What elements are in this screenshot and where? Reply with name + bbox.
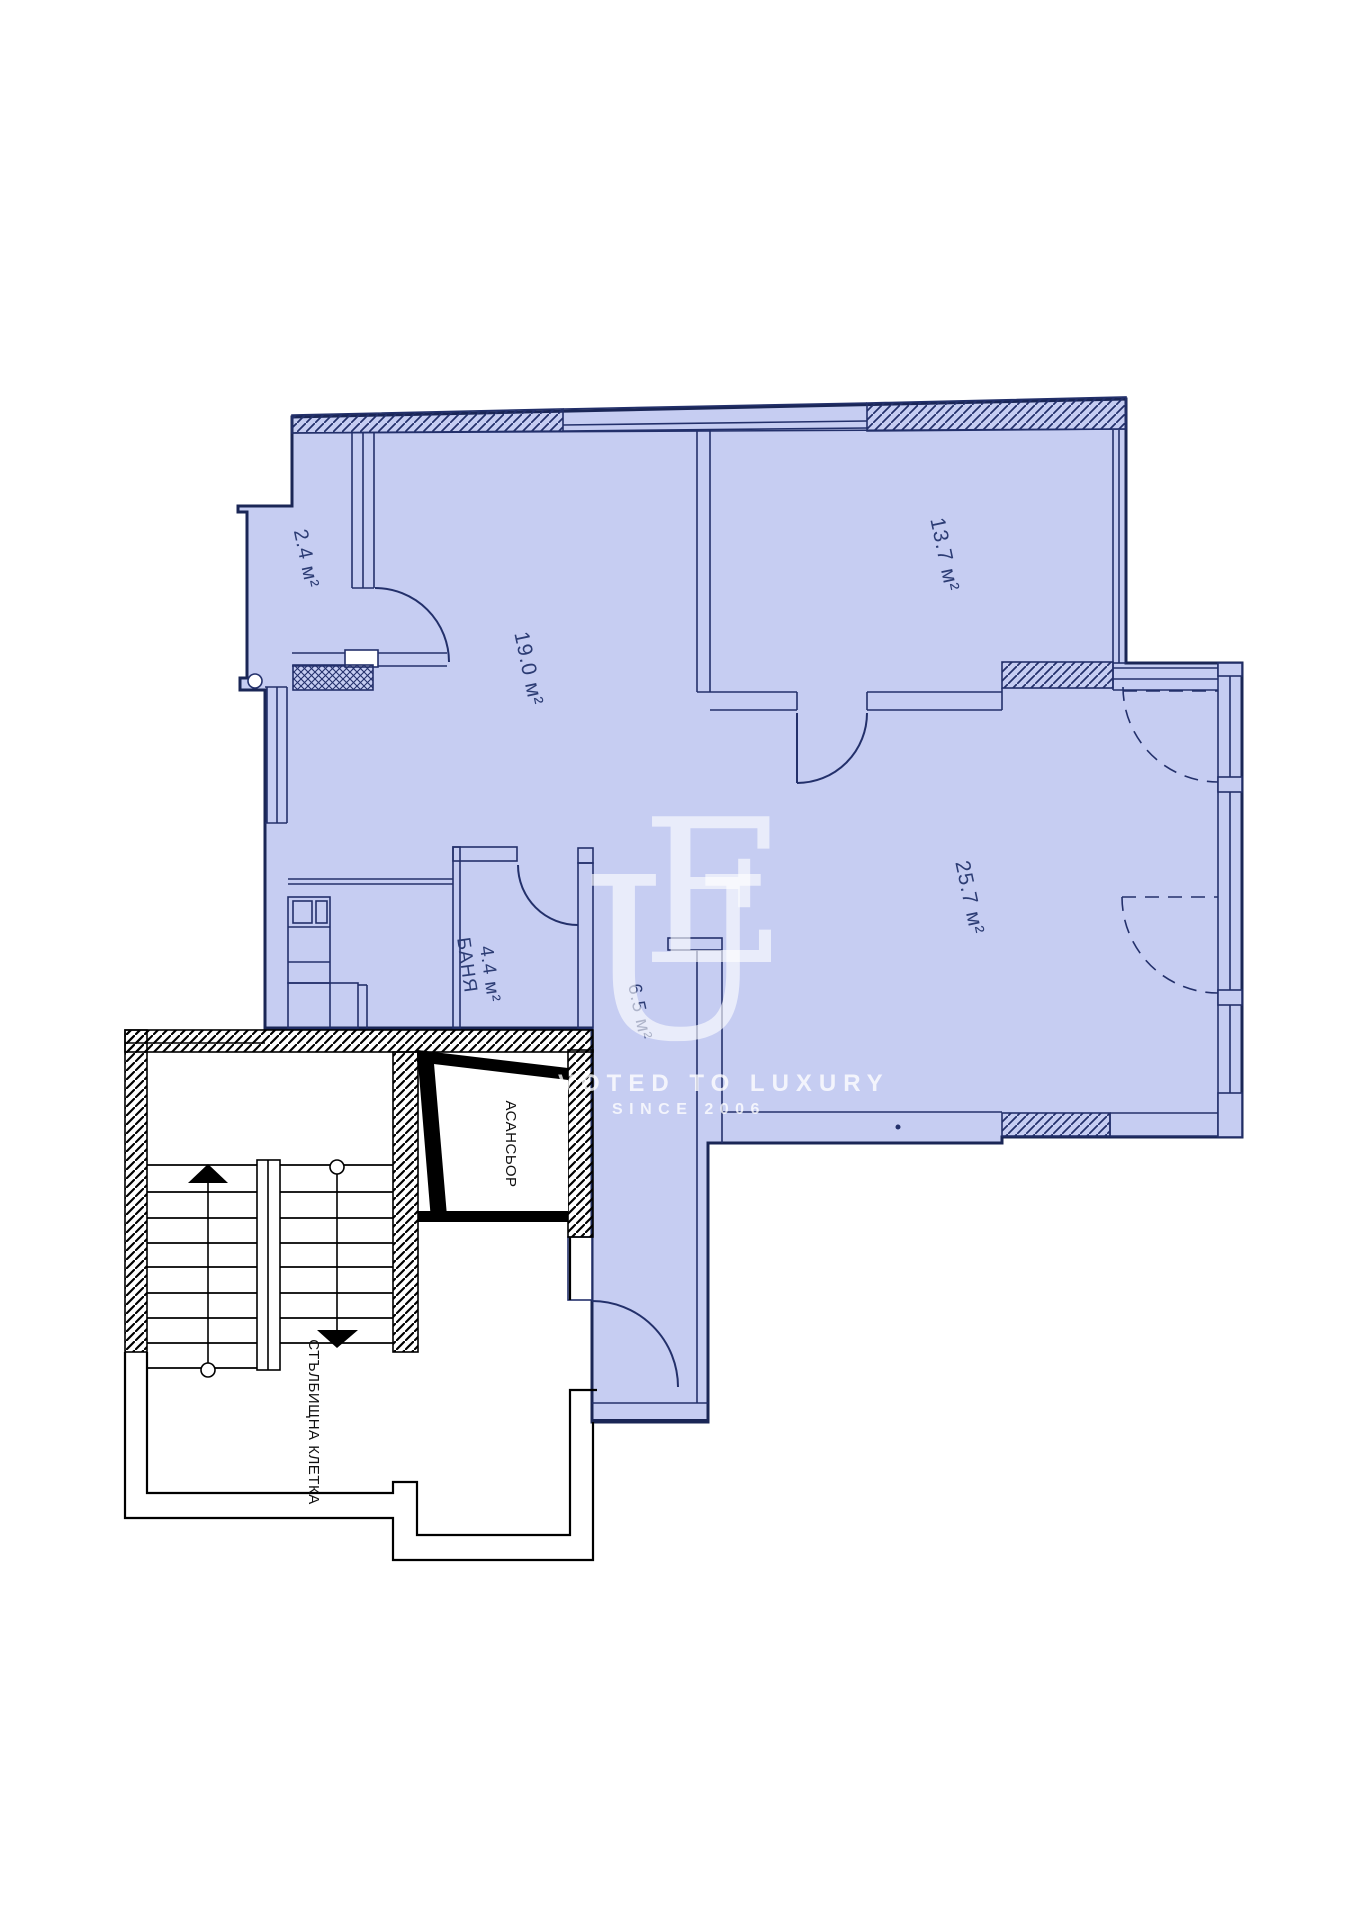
stairwell [125, 1030, 597, 1560]
watermark-tagline: VOTED TO LUXURY [558, 1070, 890, 1097]
watermark-since: SINCE 2006 [612, 1101, 766, 1118]
watermark-letter-u: U [581, 830, 771, 1092]
stairwell-label: СТЪЛБИЩНА КЛЕТКА [305, 1339, 322, 1504]
floor-plan-page: 2.4 м² 19.0 м² 13.7 м² 25.7 м² БАНЯ 4.4 … [0, 0, 1366, 1932]
window-bedroom-right [1113, 430, 1218, 690]
elevator-label: АСАНСЬОР [502, 1100, 519, 1187]
plan-dot [896, 1125, 901, 1130]
wall-hatched-mid [1002, 662, 1113, 688]
floor-plan-drawing: 2.4 м² 19.0 м² 13.7 м² 25.7 м² БАНЯ 4.4 … [0, 0, 1366, 1932]
